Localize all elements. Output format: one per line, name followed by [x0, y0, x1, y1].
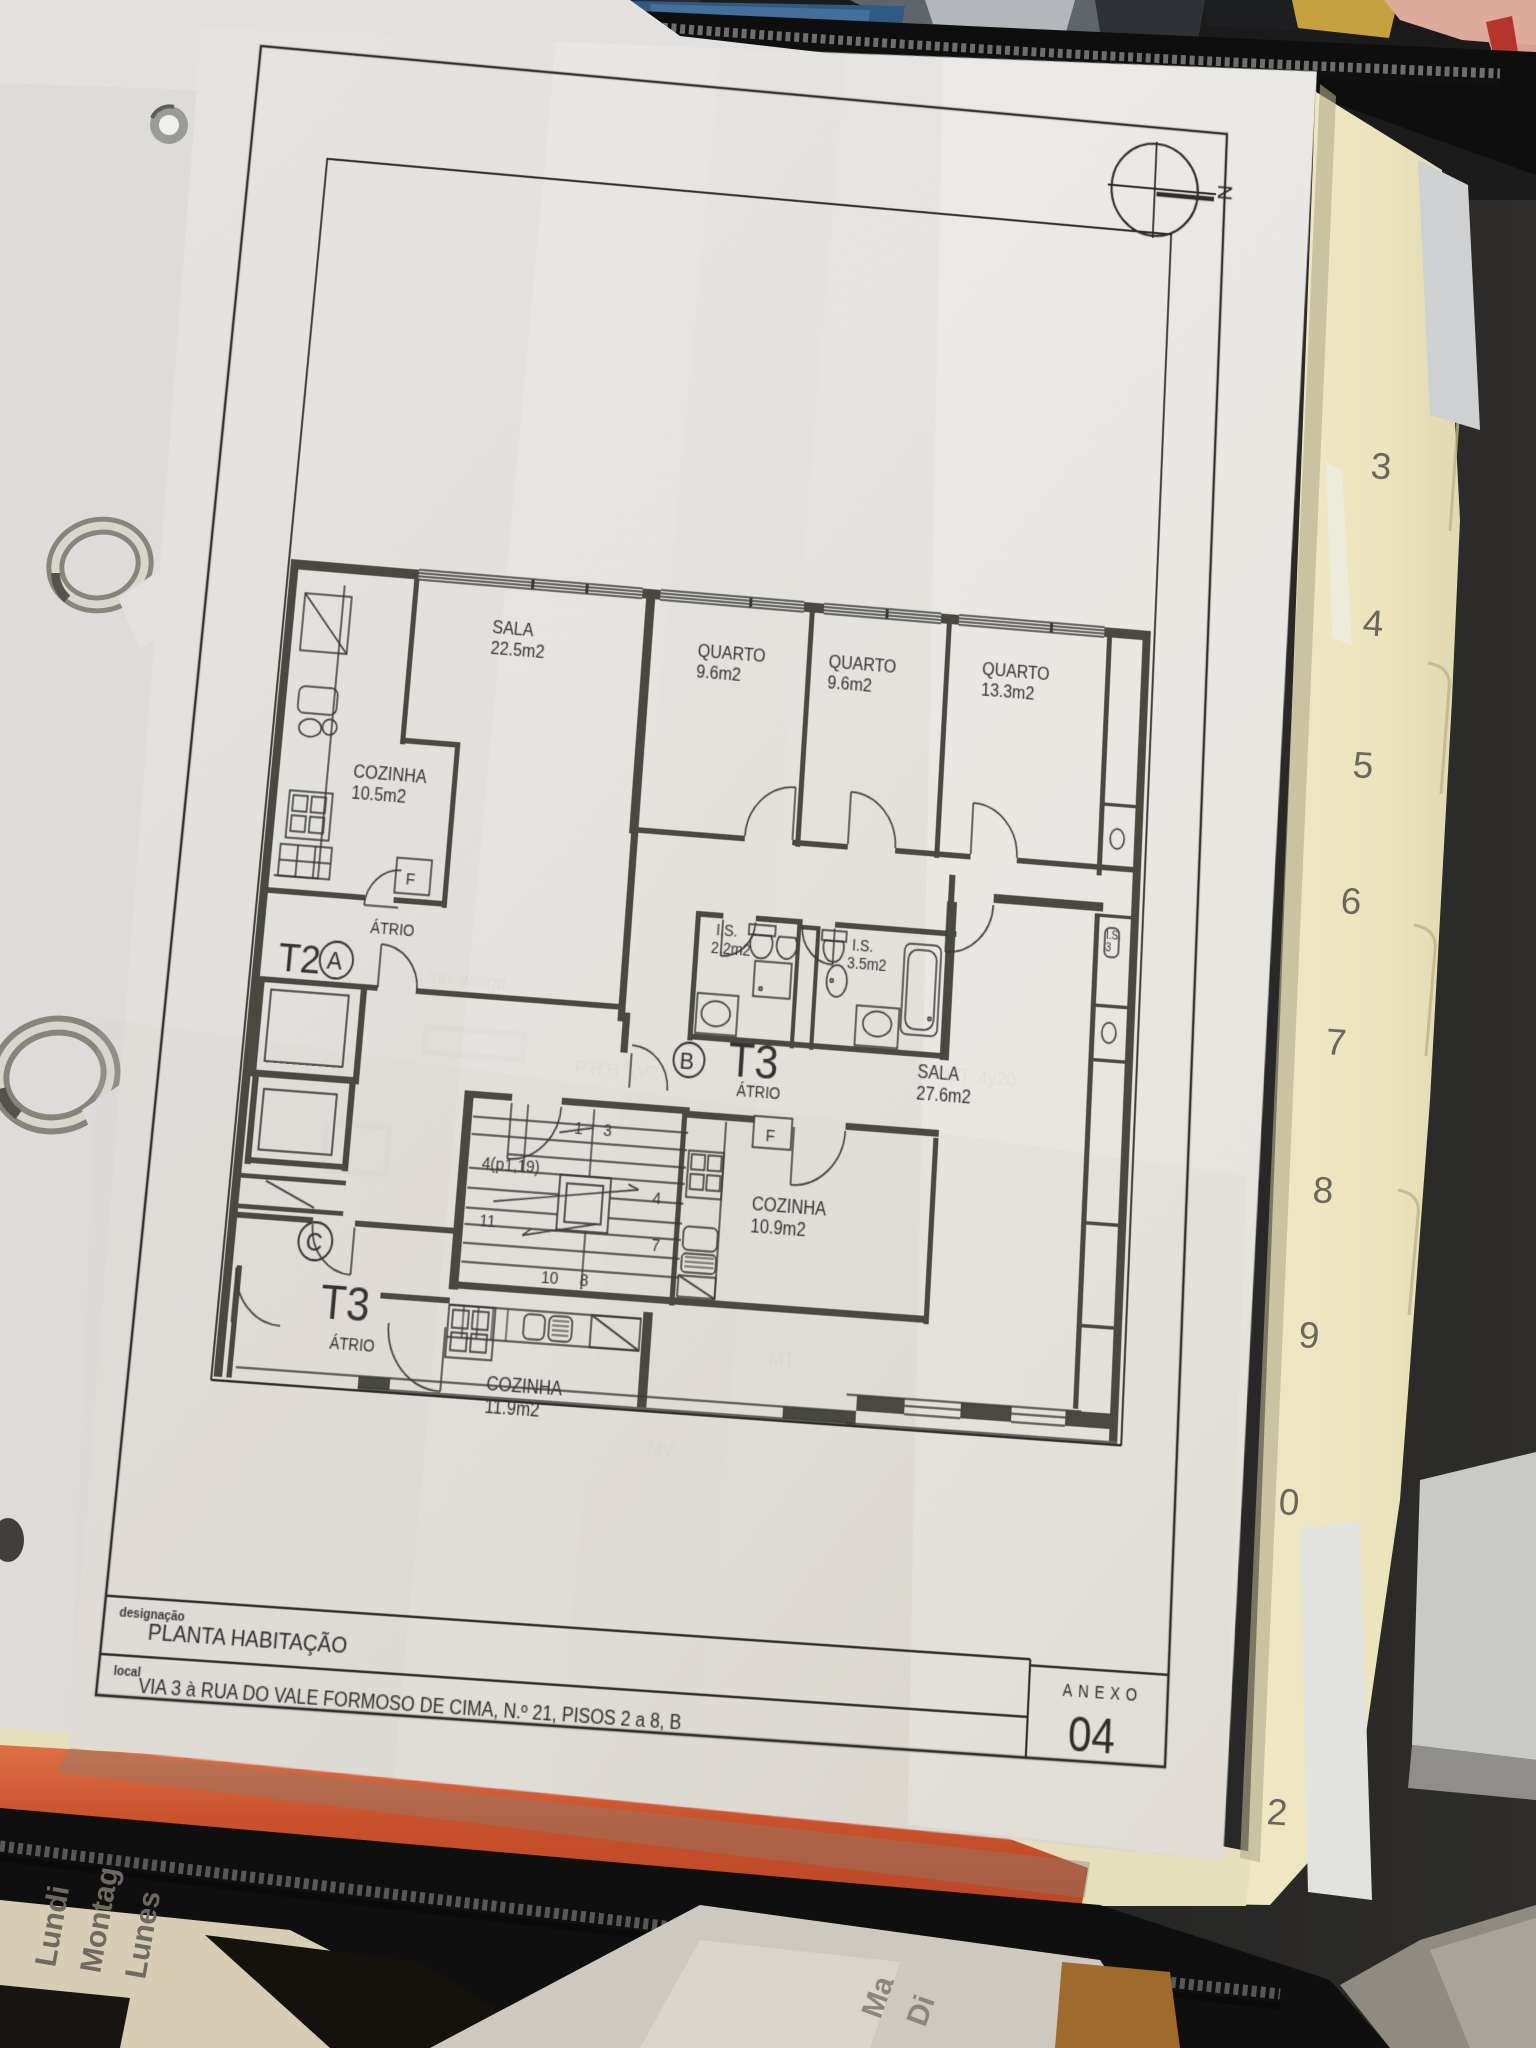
svg-text:10: 10: [540, 1268, 559, 1289]
svg-text:ÁTRIO: ÁTRIO: [329, 1333, 376, 1355]
svg-text:F: F: [405, 870, 416, 890]
svg-text:F: F: [765, 1126, 776, 1146]
svg-text:I.S.: I.S.: [1106, 930, 1122, 943]
svg-text:04: 04: [1067, 1706, 1116, 1764]
svg-text:4(p1,19): 4(p1,19): [481, 1154, 541, 1178]
svg-text:T3: T3: [318, 1275, 372, 1332]
svg-text:10.9m2: 10.9m2: [750, 1216, 806, 1241]
svg-text:3.5m2: 3.5m2: [846, 953, 887, 974]
svg-text:ÁTRIO: ÁTRIO: [736, 1081, 781, 1103]
svg-text:ÁTRIO: ÁTRIO: [370, 918, 416, 940]
svg-text:2.2m2: 2.2m2: [710, 938, 751, 959]
svg-text:8: 8: [579, 1270, 589, 1291]
svg-text:I.S.: I.S.: [852, 936, 874, 956]
svg-text:C: C: [305, 1227, 324, 1258]
svg-text:ʼMV: ʼMV: [643, 1436, 676, 1461]
svg-text:ʼMT: ʼMT: [764, 1347, 795, 1372]
svg-text:A: A: [326, 946, 344, 976]
svg-text:4: 4: [652, 1189, 662, 1209]
svg-text:11: 11: [479, 1211, 497, 1232]
svg-text:B: B: [679, 1048, 695, 1075]
svg-text:local: local: [113, 1664, 142, 1681]
svg-text:T2: T2: [276, 935, 322, 983]
svg-text:7: 7: [651, 1236, 661, 1256]
svg-text:1: 1: [574, 1119, 584, 1139]
svg-text:SALA: SALA: [492, 618, 535, 641]
svg-text:N: N: [1213, 184, 1235, 201]
svg-text:I.S.: I.S.: [716, 920, 739, 940]
svg-text:3: 3: [1105, 942, 1112, 955]
svg-text:9.6m2: 9.6m2: [696, 662, 742, 685]
svg-text:T3: T3: [726, 1032, 780, 1089]
svg-text:3: 3: [603, 1121, 613, 1141]
svg-text:11.9m2: 11.9m2: [484, 1396, 541, 1421]
svg-text:9.6m2: 9.6m2: [827, 673, 873, 696]
svg-text:27.6m2: 27.6m2: [916, 1083, 972, 1108]
svg-text:10.5m2: 10.5m2: [351, 783, 407, 807]
